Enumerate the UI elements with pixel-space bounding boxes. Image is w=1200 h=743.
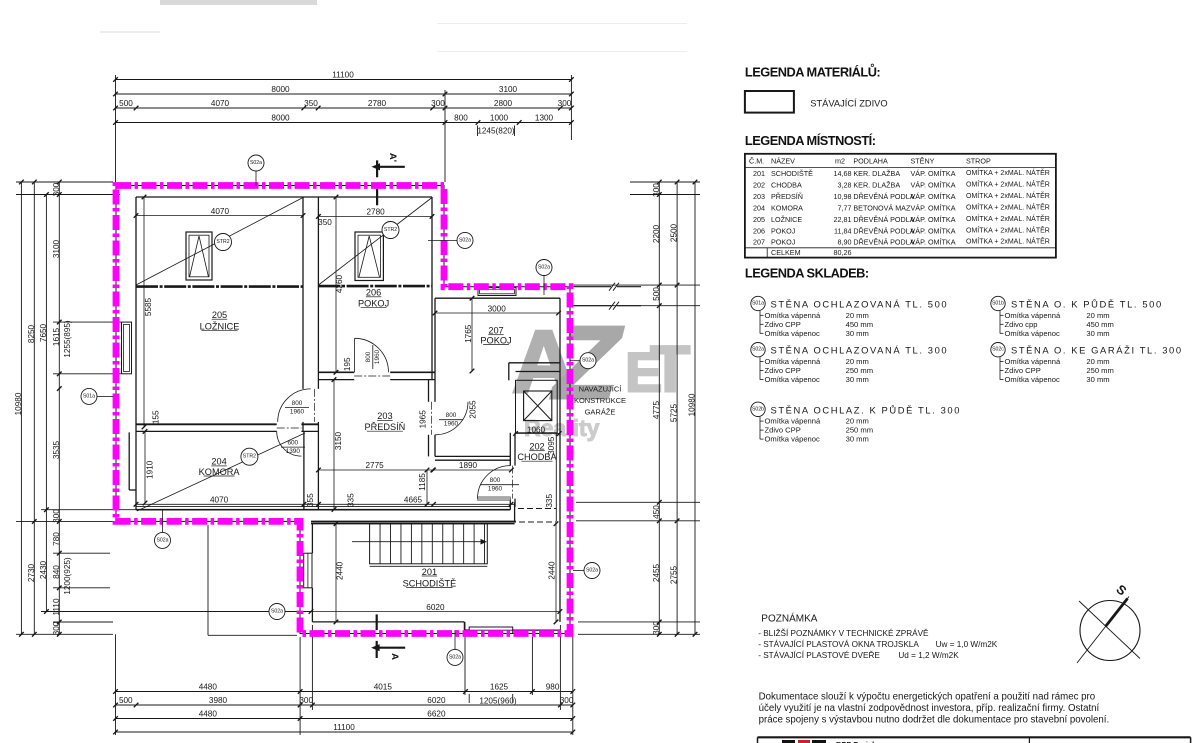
svg-text:S02c: S02c <box>992 347 1004 353</box>
svg-text:VÁP. OMÍTKA: VÁP. OMÍTKA <box>911 238 956 247</box>
svg-text:STR2: STR2 <box>384 227 397 233</box>
svg-text:S: S <box>1113 581 1130 598</box>
svg-text:CHODBA: CHODBA <box>517 452 557 462</box>
svg-text:207: 207 <box>488 326 503 336</box>
svg-text:202: 202 <box>753 180 765 189</box>
svg-text:206: 206 <box>366 288 381 298</box>
svg-text:práce spojeny s výstavbou nutn: práce spojeny s výstavbou nutno dodržet … <box>759 715 1110 726</box>
svg-text:500: 500 <box>119 99 133 108</box>
svg-text:10980: 10980 <box>688 393 697 416</box>
svg-text:POZNÁMKA: POZNÁMKA <box>761 612 817 625</box>
svg-text:LOŽNICE: LOŽNICE <box>200 322 240 332</box>
svg-text:STĚNY: STĚNY <box>911 156 935 165</box>
svg-text:250 mm: 250 mm <box>846 366 873 375</box>
svg-text:S01b: S01b <box>992 301 1004 307</box>
svg-text:203: 203 <box>753 192 765 201</box>
svg-text:LEGENDA MÍSTNOSTÍ:: LEGENDA MÍSTNOSTÍ: <box>745 133 876 148</box>
svg-text:1960: 1960 <box>290 409 305 416</box>
svg-text:STĚNA O. K PŮDĚ TL. 500: STĚNA O. K PŮDĚ TL. 500 <box>1011 299 1163 310</box>
svg-text:4775: 4775 <box>652 400 661 419</box>
svg-text:STÁVAJÍCÍ ZDIVO: STÁVAJÍCÍ ZDIVO <box>810 99 887 109</box>
svg-text:800: 800 <box>365 351 372 362</box>
svg-text:Omítka vápenná: Omítka vápenná <box>765 311 821 320</box>
svg-text:250 mm: 250 mm <box>1086 366 1113 375</box>
svg-text:DŘEVĚNÁ PODLA: DŘEVĚNÁ PODLA <box>853 226 914 235</box>
svg-text:203: 203 <box>377 411 392 421</box>
svg-text:8250: 8250 <box>27 324 36 343</box>
svg-text:GARÁŽE: GARÁŽE <box>585 408 616 417</box>
svg-text:300: 300 <box>558 99 572 108</box>
svg-text:207: 207 <box>753 238 765 247</box>
svg-text:NAVAZUJÍCÍ: NAVAZUJÍCÍ <box>579 385 623 394</box>
svg-text:30 mm: 30 mm <box>846 329 869 338</box>
svg-text:1205(960): 1205(960) <box>479 696 517 705</box>
svg-text:Zdivo CPP: Zdivo CPP <box>765 426 801 435</box>
svg-text:OMÍTKA + 2xMAL. NÁTĚR: OMÍTKA + 2xMAL. NÁTĚR <box>966 191 1050 200</box>
svg-text:Zdivo CPP: Zdivo CPP <box>765 366 801 375</box>
svg-text:201: 201 <box>753 169 765 178</box>
svg-text:S01a: S01a <box>752 301 764 307</box>
svg-text:1965: 1965 <box>419 410 428 429</box>
svg-text:STĚNA OCHLAZOVANÁ TL. 500: STĚNA OCHLAZOVANÁ TL. 500 <box>771 299 949 310</box>
svg-text:Omítka vápenoc: Omítka vápenoc <box>765 329 820 338</box>
svg-text:4015: 4015 <box>374 683 393 692</box>
svg-text:2430: 2430 <box>39 560 48 579</box>
svg-text:OMÍTKA + 2xMAL. NÁTĚR: OMÍTKA + 2xMAL. NÁTĚR <box>966 225 1050 234</box>
svg-text:202: 202 <box>529 442 544 452</box>
svg-text:SCHODIŠTĚ: SCHODIŠTĚ <box>403 578 457 588</box>
svg-text:20 mm: 20 mm <box>1086 357 1109 366</box>
svg-text:S02a: S02a <box>271 609 283 615</box>
svg-text:S02a: S02a <box>586 568 598 574</box>
svg-text:Omítka vápenná: Omítka vápenná <box>1005 357 1061 366</box>
svg-text:355: 355 <box>306 493 315 507</box>
svg-text:2800: 2800 <box>494 99 513 108</box>
svg-text:195: 195 <box>343 357 352 371</box>
svg-text:300: 300 <box>52 621 61 635</box>
svg-text:22,81: 22,81 <box>834 215 852 224</box>
svg-text:4665: 4665 <box>404 496 423 505</box>
svg-text:KONSTRUKCE: KONSTRUKCE <box>574 396 626 405</box>
svg-text:2200: 2200 <box>652 224 661 243</box>
svg-text:POKOJ: POKOJ <box>480 335 511 345</box>
svg-text:450 mm: 450 mm <box>846 320 873 329</box>
svg-text:10980: 10980 <box>14 392 23 415</box>
svg-text:STĚNA OCHLAZOVANÁ TL. 300: STĚNA OCHLAZOVANÁ TL. 300 <box>771 345 949 356</box>
svg-text:Omítka vápenná: Omítka vápenná <box>1005 311 1061 320</box>
svg-text:VÁP. OMÍTKA: VÁP. OMÍTKA <box>911 192 956 201</box>
svg-text:11100: 11100 <box>332 71 354 80</box>
svg-text:300: 300 <box>431 99 445 108</box>
svg-text:- STÁVAJÍCÍ PLASTOVÉ DVEŘE: - STÁVAJÍCÍ PLASTOVÉ DVEŘE <box>758 650 880 660</box>
svg-text:3150: 3150 <box>334 431 343 450</box>
svg-text:6020: 6020 <box>426 603 445 612</box>
svg-text:800: 800 <box>446 412 457 419</box>
svg-text:1390: 1390 <box>286 448 301 455</box>
svg-text:840: 840 <box>52 565 61 579</box>
svg-text:350: 350 <box>318 218 332 227</box>
svg-text:1960: 1960 <box>488 486 503 493</box>
svg-text:Omítka vápenná: Omítka vápenná <box>765 357 821 366</box>
svg-text:VÁP. OMÍTKA: VÁP. OMÍTKA <box>911 203 956 212</box>
svg-text:6020: 6020 <box>427 696 446 705</box>
svg-text:30 mm: 30 mm <box>846 435 869 444</box>
svg-text:1110: 1110 <box>52 598 61 615</box>
svg-text:OMÍTKA + 2xMAL. NÁTĚR: OMÍTKA + 2xMAL. NÁTĚR <box>966 179 1050 188</box>
svg-text:2055: 2055 <box>469 400 478 419</box>
svg-text:8000: 8000 <box>271 114 290 123</box>
svg-text:Č.M.: Č.M. <box>749 156 764 165</box>
svg-text:A: A <box>389 653 400 660</box>
svg-text:1000: 1000 <box>490 114 509 123</box>
svg-text:POKOJ: POKOJ <box>771 226 796 235</box>
svg-text:m2: m2 <box>835 156 845 165</box>
svg-text:206: 206 <box>753 226 765 235</box>
svg-text:4070: 4070 <box>211 207 230 216</box>
svg-text:1245(820): 1245(820) <box>477 127 515 136</box>
svg-text:335: 335 <box>347 493 356 507</box>
svg-text:8,90: 8,90 <box>838 238 852 247</box>
svg-text:300: 300 <box>652 621 661 635</box>
svg-text:450 mm: 450 mm <box>1086 320 1113 329</box>
svg-text:OMÍTKA + 2xMAL. NÁTĚR: OMÍTKA + 2xMAL. NÁTĚR <box>966 237 1050 246</box>
svg-text:PODLAHA: PODLAHA <box>853 156 888 165</box>
svg-text:S02a: S02a <box>582 358 594 364</box>
svg-text:BETONOVÁ MAZ: BETONOVÁ MAZ <box>853 203 911 212</box>
svg-text:205: 205 <box>212 310 227 320</box>
svg-text:350: 350 <box>304 99 318 108</box>
svg-text:DŘEVĚNÁ PODLA: DŘEVĚNÁ PODLA <box>853 238 914 247</box>
svg-text:4480: 4480 <box>199 683 218 692</box>
svg-text:S02a: S02a <box>156 537 168 543</box>
svg-text:80,26: 80,26 <box>834 248 852 257</box>
svg-text:KER. DLAŽBA: KER. DLAŽBA <box>853 169 900 178</box>
svg-text:S02a: S02a <box>250 160 262 166</box>
svg-text:Dokumentace slouží k výpočtu e: Dokumentace slouží k výpočtu energetický… <box>759 691 1096 702</box>
svg-text:Omítka vápenoc: Omítka vápenoc <box>1005 329 1060 338</box>
svg-text:2455: 2455 <box>652 563 661 582</box>
svg-text:Omítka vápenoc: Omítka vápenoc <box>765 375 820 384</box>
svg-text:3000: 3000 <box>488 304 507 313</box>
svg-text:Zdivo CPP: Zdivo CPP <box>1005 366 1041 375</box>
svg-text:OMÍTKA + 2xMAL. NÁTĚR: OMÍTKA + 2xMAL. NÁTĚR <box>966 214 1050 223</box>
svg-text:155: 155 <box>152 410 161 424</box>
svg-text:2780: 2780 <box>366 208 385 217</box>
svg-text:STROP: STROP <box>966 156 991 165</box>
svg-text:1625: 1625 <box>490 683 509 692</box>
svg-text:S02a: S02a <box>538 265 550 271</box>
svg-text:Zdivo cpp: Zdivo cpp <box>1005 320 1038 329</box>
svg-text:20 mm: 20 mm <box>846 417 869 426</box>
svg-text:KER. DLAŽBA: KER. DLAŽBA <box>853 180 900 189</box>
svg-text:800: 800 <box>490 477 501 484</box>
svg-text:S01a: S01a <box>83 393 95 399</box>
svg-text:DŘEVĚNÁ PODLA: DŘEVĚNÁ PODLA <box>853 192 914 201</box>
svg-text:450: 450 <box>652 505 661 519</box>
svg-text:1890: 1890 <box>459 461 478 470</box>
svg-text:5725: 5725 <box>670 403 679 422</box>
svg-text:LEGENDA SKLADEB:: LEGENDA SKLADEB: <box>745 266 869 281</box>
svg-text:204: 204 <box>211 457 226 467</box>
svg-text:VÁP. OMÍTKA: VÁP. OMÍTKA <box>911 226 956 235</box>
svg-text:PŘEDSÍŇ: PŘEDSÍŇ <box>771 192 803 201</box>
svg-text:11100: 11100 <box>333 723 355 732</box>
svg-text:2440: 2440 <box>547 561 556 580</box>
svg-text:1200(925): 1200(925) <box>63 557 72 595</box>
svg-text:LEGENDA MATERIÁLŮ:: LEGENDA MATERIÁLŮ: <box>745 64 881 80</box>
svg-text:Uw = 1,0 W/m2K: Uw = 1,0 W/m2K <box>936 640 998 649</box>
svg-text:KOMORA: KOMORA <box>199 467 241 477</box>
svg-text:S02a: S02a <box>449 654 461 660</box>
svg-text:NÁZEV: NÁZEV <box>771 156 795 165</box>
svg-text:PŘEDSÍŇ: PŘEDSÍŇ <box>364 422 405 432</box>
svg-text:DŘEVĚNÁ PODLA: DŘEVĚNÁ PODLA <box>853 215 914 224</box>
svg-text:S02a: S02a <box>752 347 764 353</box>
svg-text:201: 201 <box>422 567 437 577</box>
svg-text:VÁP. OMÍTKA: VÁP. OMÍTKA <box>911 215 956 224</box>
svg-text:300: 300 <box>299 696 313 705</box>
svg-text:Omítka vápenoc: Omítka vápenoc <box>765 435 820 444</box>
svg-text:205: 205 <box>753 215 765 224</box>
svg-text:2440: 2440 <box>336 561 345 580</box>
svg-text:4260: 4260 <box>335 274 344 293</box>
svg-text:20 mm: 20 mm <box>846 357 869 366</box>
svg-text:účely využití je na vlastní zo: účely využití je na vlastní zodpovědnost… <box>759 703 1100 714</box>
svg-text:300: 300 <box>52 509 61 523</box>
svg-text:KOMORA: KOMORA <box>771 203 803 212</box>
svg-text:4070: 4070 <box>210 496 229 505</box>
svg-text:T: T <box>650 332 690 406</box>
svg-text:CHODBA: CHODBA <box>771 180 802 189</box>
svg-text:3,28: 3,28 <box>838 180 852 189</box>
svg-text:STR2: STR2 <box>216 239 229 245</box>
svg-text:335: 335 <box>545 494 554 508</box>
svg-text:5585: 5585 <box>144 297 153 316</box>
svg-text:- BLIŽŠÍ POZNÁMKY V TECHNICKÉ: - BLIŽŠÍ POZNÁMKY V TECHNICKÉ ZPRÁVĚ <box>758 628 929 638</box>
svg-text:2500: 2500 <box>670 223 679 242</box>
svg-text:1300: 1300 <box>535 114 554 123</box>
svg-text:S02a: S02a <box>459 237 471 243</box>
svg-text:POKOJ: POKOJ <box>771 238 796 247</box>
svg-text:S02b: S02b <box>752 406 764 412</box>
svg-text:OMÍTKA + 2xMAL. NÁTĚR: OMÍTKA + 2xMAL. NÁTĚR <box>966 202 1050 211</box>
svg-text:Omítka vápenoc: Omítka vápenoc <box>1005 375 1060 384</box>
svg-text:3535: 3535 <box>52 440 61 459</box>
svg-text:3100: 3100 <box>499 85 518 94</box>
svg-text:1255(895): 1255(895) <box>63 320 72 358</box>
svg-text:6620: 6620 <box>427 710 446 719</box>
svg-text:1765: 1765 <box>464 324 473 343</box>
svg-text:300: 300 <box>560 696 574 705</box>
svg-text:30 mm: 30 mm <box>1086 375 1109 384</box>
svg-text:POKOJ: POKOJ <box>358 299 389 309</box>
svg-text:204: 204 <box>753 203 765 212</box>
svg-text:2755: 2755 <box>670 565 679 584</box>
svg-text:500: 500 <box>119 696 133 705</box>
svg-text:2780: 2780 <box>368 99 387 108</box>
svg-text:1185: 1185 <box>418 473 427 491</box>
svg-text:800: 800 <box>292 400 303 407</box>
svg-text:2775: 2775 <box>365 461 384 470</box>
svg-text:250 mm: 250 mm <box>846 426 873 435</box>
svg-text:500: 500 <box>652 287 661 301</box>
svg-text:7650: 7650 <box>39 323 48 342</box>
svg-text:1615: 1615 <box>52 327 61 346</box>
svg-text:2730: 2730 <box>27 563 36 582</box>
svg-text:20 mm: 20 mm <box>846 311 869 320</box>
svg-text:CELKEM: CELKEM <box>771 248 801 257</box>
svg-text:1960: 1960 <box>374 349 381 364</box>
svg-text:Omítka vápenná: Omítka vápenná <box>765 417 821 426</box>
svg-text:780: 780 <box>52 532 61 546</box>
svg-text:8000: 8000 <box>271 85 290 94</box>
svg-text:980: 980 <box>546 683 560 692</box>
svg-text:7,77: 7,77 <box>838 203 852 212</box>
svg-text:14,68: 14,68 <box>834 169 852 178</box>
svg-text:Ud = 1,2 W/m2K: Ud = 1,2 W/m2K <box>898 651 959 660</box>
svg-text:STR2: STR2 <box>243 454 256 460</box>
svg-text:20 mm: 20 mm <box>1086 311 1109 320</box>
svg-text:30 mm: 30 mm <box>1086 329 1109 338</box>
svg-text:OMÍTKA + 2xMAL. NÁTĚR: OMÍTKA + 2xMAL. NÁTĚR <box>966 168 1050 177</box>
svg-text:11,84: 11,84 <box>834 226 851 235</box>
svg-text:STĚNA OCHLAZ. K PŮDĚ TL. 300: STĚNA OCHLAZ. K PŮDĚ TL. 300 <box>771 404 962 415</box>
svg-text:STĚNA O. KE GARÁŽI TL. 300: STĚNA O. KE GARÁŽI TL. 300 <box>1011 345 1183 356</box>
svg-text:SCHODIŠTĚ: SCHODIŠTĚ <box>771 169 813 178</box>
svg-text:VÁP. OMÍTKA: VÁP. OMÍTKA <box>911 180 956 189</box>
svg-text:30 mm: 30 mm <box>846 375 869 384</box>
svg-text:4480: 4480 <box>199 710 218 719</box>
svg-text:VÁP. OMÍTKA: VÁP. OMÍTKA <box>911 169 956 178</box>
svg-text:Zdivo CPP: Zdivo CPP <box>765 320 801 329</box>
svg-text:4070: 4070 <box>211 99 230 108</box>
svg-text:- STÁVAJÍCÍ PLASTOVÁ OKNA TROJ: - STÁVAJÍCÍ PLASTOVÁ OKNA TROJSKLA <box>758 639 919 649</box>
svg-text:1910: 1910 <box>145 460 154 479</box>
svg-text:800: 800 <box>454 114 468 123</box>
svg-text:A': A' <box>387 153 398 162</box>
svg-text:LOŽNICE: LOŽNICE <box>771 215 802 224</box>
svg-text:10,98: 10,98 <box>834 192 852 201</box>
svg-text:3980: 3980 <box>209 696 228 705</box>
svg-text:3100: 3100 <box>52 239 61 258</box>
